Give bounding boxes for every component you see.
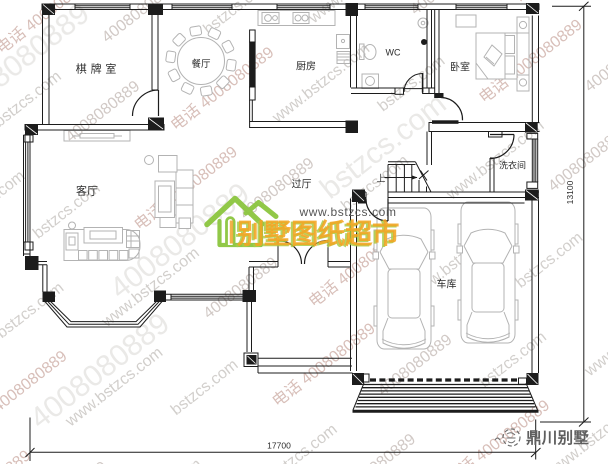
svg-text:棋牌室: 棋牌室 (76, 62, 120, 76)
svg-text:WC: WC (386, 48, 401, 58)
svg-text:www.bstzcs.com: www.bstzcs.com (298, 205, 396, 219)
svg-text:厨房: 厨房 (296, 60, 316, 73)
svg-text:别墅图纸超市: 别墅图纸超市 (237, 218, 399, 249)
svg-text:卧室: 卧室 (450, 61, 470, 74)
svg-text:车库: 车库 (437, 278, 457, 291)
svg-text:客厅: 客厅 (76, 184, 98, 198)
svg-text:17700: 17700 (267, 441, 291, 451)
svg-text:鼎川别墅: 鼎川别墅 (526, 428, 589, 447)
svg-text:13100: 13100 (565, 180, 575, 204)
svg-text:上: 上 (376, 174, 385, 184)
svg-text:过厅: 过厅 (292, 178, 312, 191)
svg-text:洗衣间: 洗衣间 (499, 160, 526, 171)
svg-text:餐厅: 餐厅 (191, 58, 211, 70)
